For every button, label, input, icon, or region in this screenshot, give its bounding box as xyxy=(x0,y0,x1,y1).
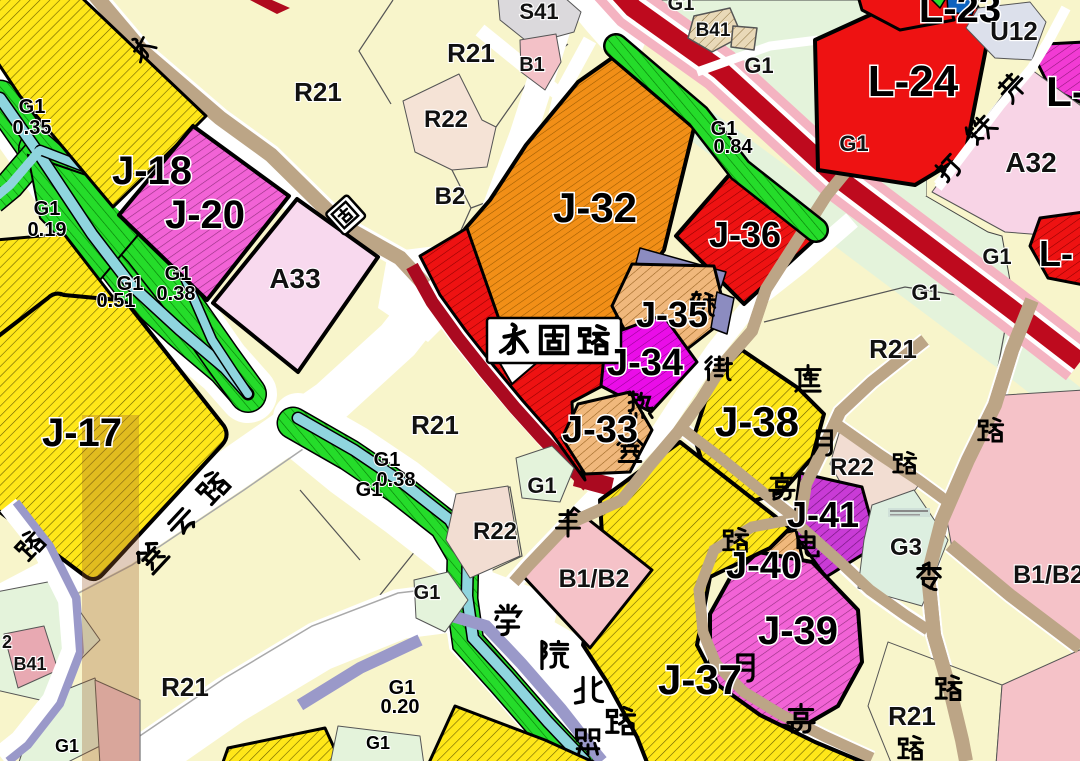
svg-text:J-36: J-36 xyxy=(709,214,781,255)
svg-text:G1: G1 xyxy=(839,131,868,156)
svg-text:L-: L- xyxy=(1046,68,1080,115)
svg-text:2: 2 xyxy=(2,632,12,652)
svg-text:J-37: J-37 xyxy=(658,656,742,703)
svg-text:R21: R21 xyxy=(447,38,495,68)
svg-text:0.38: 0.38 xyxy=(377,469,416,491)
svg-text:0.51: 0.51 xyxy=(97,290,136,312)
svg-text:0.20: 0.20 xyxy=(381,696,420,718)
svg-text:S41: S41 xyxy=(519,0,558,24)
svg-text:G1: G1 xyxy=(165,263,192,285)
svg-text:J-17: J-17 xyxy=(42,411,122,455)
svg-text:G1: G1 xyxy=(374,449,401,471)
svg-text:0.19: 0.19 xyxy=(28,219,67,241)
svg-text:A33: A33 xyxy=(269,263,320,294)
svg-text:J-20: J-20 xyxy=(165,193,245,237)
svg-text:J-39: J-39 xyxy=(758,609,838,653)
svg-text:R21: R21 xyxy=(888,701,936,731)
svg-text:G1: G1 xyxy=(19,96,46,118)
svg-text:R21: R21 xyxy=(161,672,209,702)
svg-text:B1: B1 xyxy=(519,54,545,76)
svg-text:G1: G1 xyxy=(911,280,940,305)
svg-text:G1: G1 xyxy=(34,198,61,220)
svg-text:L-24: L-24 xyxy=(868,57,959,106)
svg-text:B41: B41 xyxy=(696,20,731,41)
svg-text:J-18: J-18 xyxy=(112,149,192,193)
svg-text:R21: R21 xyxy=(411,410,459,440)
svg-text:G3: G3 xyxy=(890,534,922,561)
svg-text:L-23: L-23 xyxy=(919,0,1001,31)
svg-text:U12: U12 xyxy=(990,16,1038,46)
svg-text:R21: R21 xyxy=(869,334,917,364)
svg-text:G1: G1 xyxy=(744,53,773,78)
svg-text:G1: G1 xyxy=(366,733,390,753)
svg-text:G1: G1 xyxy=(668,0,695,15)
svg-text:J-32: J-32 xyxy=(553,184,637,231)
svg-text:J-40: J-40 xyxy=(726,545,802,587)
svg-text:B1/B2: B1/B2 xyxy=(559,565,630,593)
svg-text:R22: R22 xyxy=(473,518,517,545)
svg-text:J-33: J-33 xyxy=(562,409,638,451)
svg-text:B41: B41 xyxy=(13,654,46,674)
svg-text:B1/B2/: B1/B2/ xyxy=(1013,561,1080,589)
svg-text:J-38: J-38 xyxy=(715,398,799,445)
svg-text:R22: R22 xyxy=(830,454,874,481)
svg-text:L-: L- xyxy=(1039,233,1073,274)
svg-text:G1: G1 xyxy=(55,736,79,756)
svg-text:J-41: J-41 xyxy=(787,494,859,535)
svg-text:0.35: 0.35 xyxy=(13,117,52,139)
svg-text:A32: A32 xyxy=(1005,147,1056,178)
svg-text:R21: R21 xyxy=(294,77,342,107)
svg-text:G1: G1 xyxy=(982,244,1011,269)
svg-text:G1: G1 xyxy=(356,479,383,501)
svg-text:G1: G1 xyxy=(414,582,441,604)
svg-text:J-35: J-35 xyxy=(636,294,708,335)
svg-text:B2: B2 xyxy=(435,183,466,210)
svg-text:0.84: 0.84 xyxy=(714,136,754,158)
svg-text:G1: G1 xyxy=(527,473,556,498)
svg-text:J-34: J-34 xyxy=(607,342,683,384)
svg-text:R22: R22 xyxy=(424,106,468,133)
svg-text:0.38: 0.38 xyxy=(157,283,196,305)
